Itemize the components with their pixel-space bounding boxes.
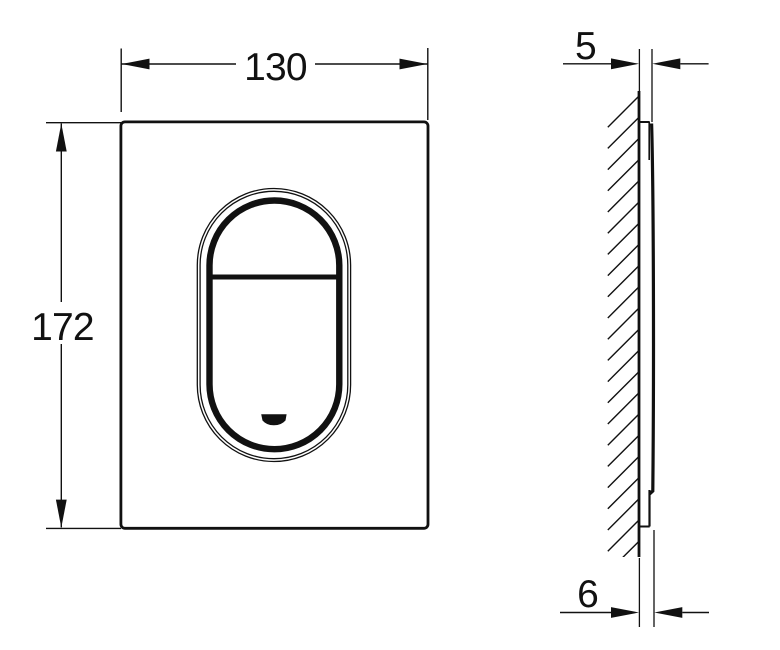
svg-text:130: 130: [244, 46, 307, 89]
svg-text:6: 6: [577, 573, 598, 616]
svg-text:5: 5: [575, 25, 596, 68]
svg-text:172: 172: [31, 306, 94, 349]
